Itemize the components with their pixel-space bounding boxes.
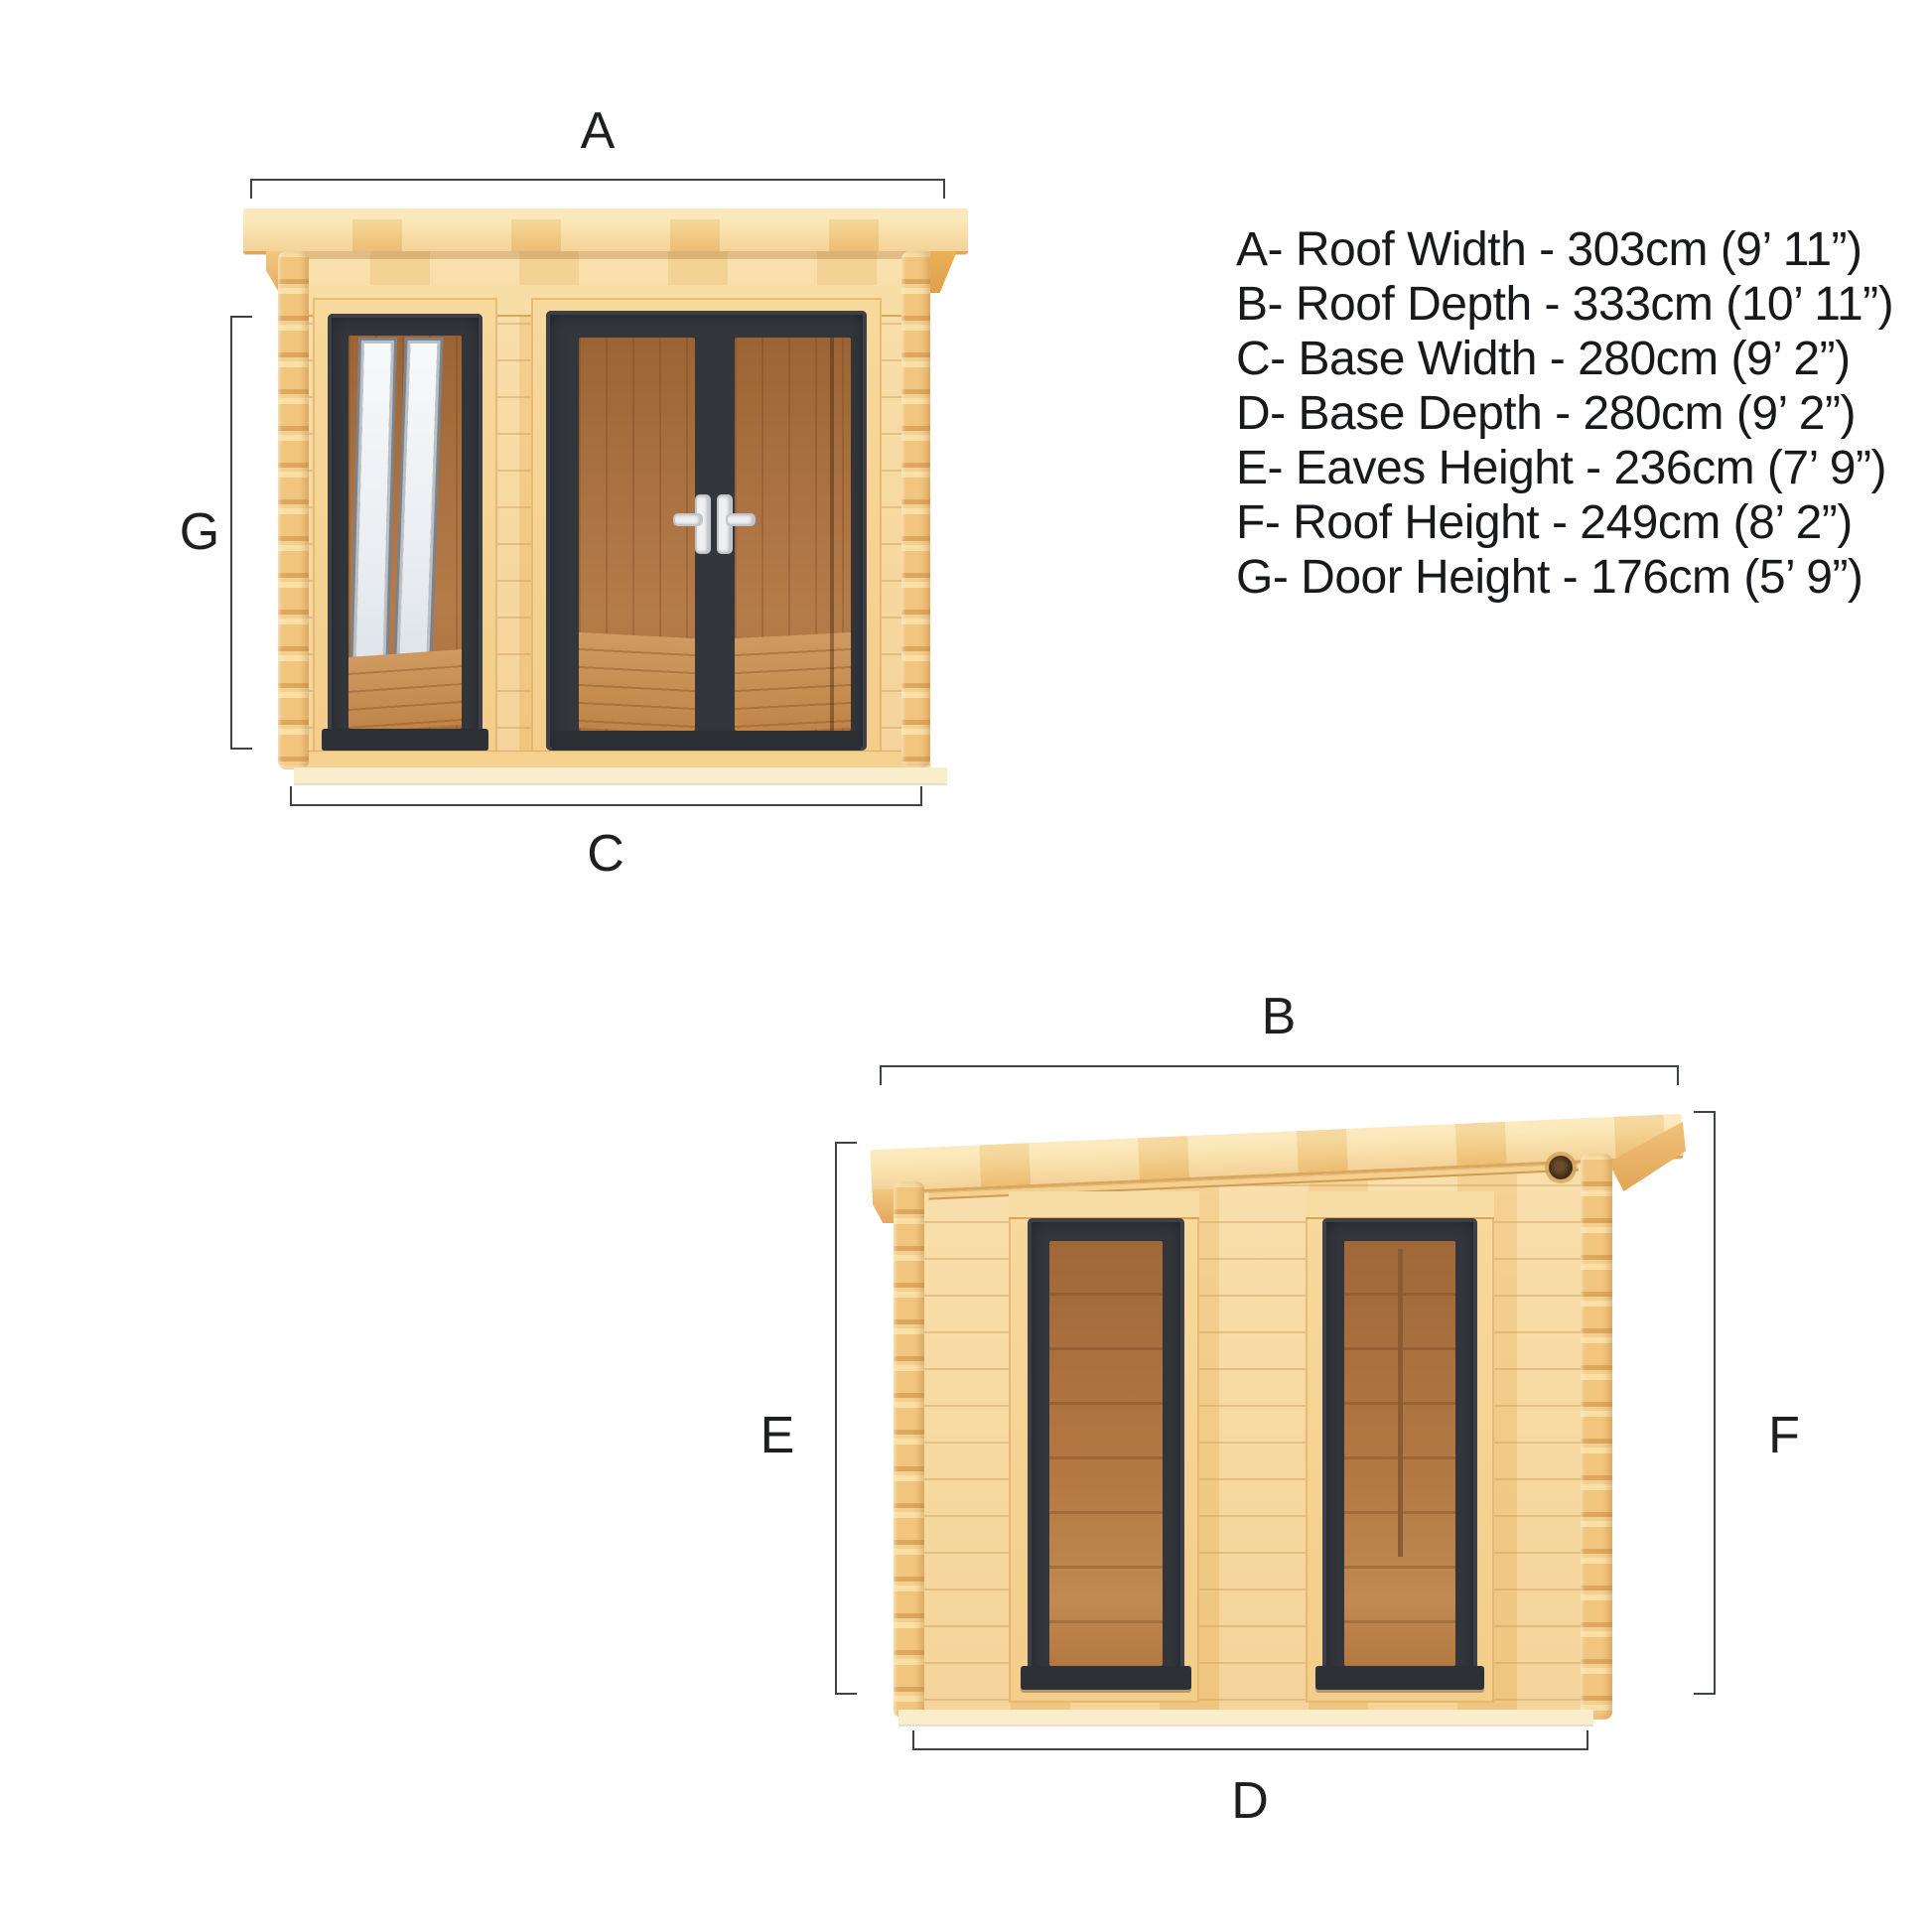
dim-label-door-height: G <box>177 506 222 558</box>
roof-top-highlight <box>243 208 968 219</box>
side-window-right-header <box>1306 1191 1494 1219</box>
interior-floor <box>348 649 462 729</box>
side-window-right-glass <box>1344 1241 1455 1666</box>
dim-line-base-depth <box>912 1748 1588 1750</box>
door-left-glass <box>579 338 695 731</box>
door-right-glass <box>735 338 851 731</box>
interior-corner-shadow <box>830 338 834 731</box>
dim-tick <box>1694 1111 1716 1113</box>
side-window-right-sill <box>1315 1666 1484 1690</box>
eave-shadow <box>281 251 930 259</box>
dim-label-roof-height: F <box>1759 1410 1809 1461</box>
dim-tick <box>835 1142 857 1144</box>
dimension-legend: A- Roof Width - 303cm (9’ 11”) B- Roof D… <box>1236 222 1911 605</box>
legend-eaves-height: E- Eaves Height - 236cm (7’ 9”) <box>1236 441 1911 495</box>
corner-logs-left <box>278 251 309 769</box>
sill-band <box>298 751 915 768</box>
dim-line-door-height <box>230 316 232 750</box>
interior-floor <box>579 632 695 731</box>
side-corner-logs-right <box>1581 1154 1612 1720</box>
side-window-left-glass <box>1049 1241 1163 1666</box>
dim-tick <box>1587 1730 1588 1750</box>
window-stay-rod <box>1398 1249 1403 1557</box>
door-handle-left-lever <box>673 513 703 526</box>
dim-line-eaves-height <box>835 1142 837 1695</box>
roof-right-bracket <box>929 251 957 293</box>
dim-label-eaves-height: E <box>753 1410 802 1461</box>
legend-door-height: G- Door Height - 176cm (5’ 9”) <box>1236 550 1911 605</box>
roof-vent-knot <box>1549 1156 1573 1179</box>
legend-base-depth: D- Base Depth - 280cm (9’ 2”) <box>1236 386 1911 441</box>
dim-tick <box>230 748 252 750</box>
dim-line-base-width <box>290 804 922 806</box>
dim-tick <box>1677 1065 1679 1085</box>
legend-roof-depth: B- Roof Depth - 333cm (10’ 11”) <box>1236 277 1911 332</box>
dim-line-roof-height <box>1714 1111 1716 1695</box>
dim-tick <box>290 786 292 806</box>
front-base-skid <box>294 767 947 783</box>
corner-logs-right <box>901 251 930 767</box>
dim-tick <box>920 786 922 806</box>
diagram-canvas: A <box>0 0 1932 1932</box>
front-elevation-view: A <box>0 0 993 894</box>
dim-tick <box>230 316 252 318</box>
dim-tick <box>835 1693 857 1695</box>
side-base-skid <box>898 1710 1593 1725</box>
dim-label-roof-depth: B <box>1249 991 1309 1042</box>
dim-label-roof-width: A <box>568 105 627 157</box>
legend-roof-height: F- Roof Height - 249cm (8’ 2”) <box>1236 495 1911 550</box>
dim-tick <box>912 1730 914 1750</box>
front-window-glass <box>348 336 462 729</box>
front-window-sill <box>322 729 488 751</box>
dim-label-base-width: C <box>576 828 635 880</box>
legend-roof-width: A- Roof Width - 303cm (9’ 11”) <box>1236 222 1911 277</box>
door-threshold <box>552 731 861 751</box>
dim-tick <box>1694 1693 1716 1695</box>
side-window-left-sill <box>1021 1666 1191 1690</box>
dim-tick <box>943 179 945 199</box>
door-handle-right-lever <box>726 513 756 526</box>
legend-base-width: C- Base Width - 280cm (9’ 2”) <box>1236 332 1911 386</box>
dim-tick <box>250 179 252 199</box>
dim-line-roof-width <box>250 179 945 181</box>
side-window-left-header <box>1009 1191 1199 1219</box>
side-corner-logs-left <box>894 1181 924 1718</box>
dim-line-roof-depth <box>880 1065 1679 1067</box>
dim-tick <box>880 1065 882 1085</box>
dim-label-base-depth: D <box>1220 1775 1280 1827</box>
